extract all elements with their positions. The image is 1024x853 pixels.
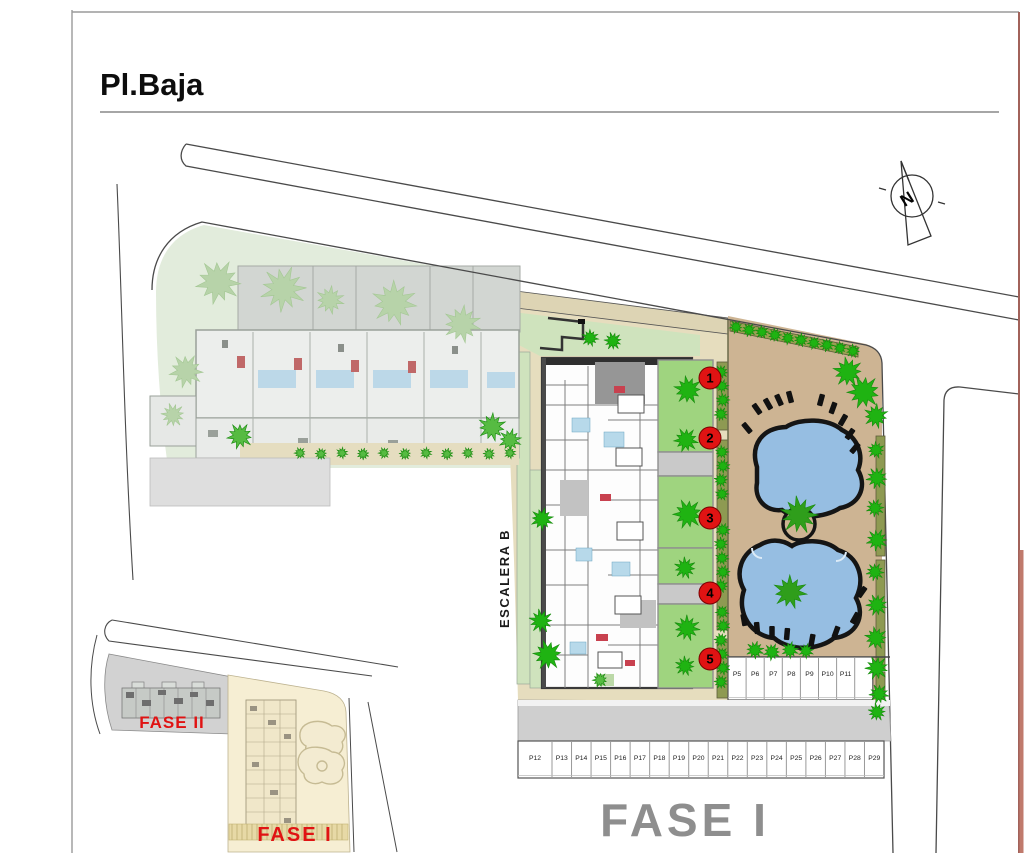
unit-marker-number: 4: [706, 586, 714, 601]
unit-marker-number: 5: [706, 652, 713, 667]
parking-stall-label: P8: [787, 671, 796, 678]
parking-stall-label: P22: [731, 755, 743, 762]
parking-row-top: P5P6P7P8P9P10P11: [728, 657, 873, 700]
fase2-main-slab: [196, 330, 519, 418]
parking-stall-label: P20: [692, 755, 704, 762]
unit-marker: 1: [699, 367, 721, 389]
unit-marker: 2: [699, 427, 721, 449]
unit-marker: 5: [699, 648, 721, 670]
parking-stall-label: P23: [751, 755, 763, 762]
compass-tick-left: [879, 188, 886, 190]
fase1-core-mid: [560, 480, 588, 516]
parking-stall-label: P9: [805, 671, 814, 678]
driveway-stripe: [518, 700, 890, 706]
parking-stall-label: P25: [790, 755, 802, 762]
inset-pools-sketch: [298, 721, 345, 784]
escalera-b-label: ESCALERA B: [497, 529, 512, 628]
pool-upper: [755, 421, 862, 517]
inset-fase1-label: FASE I: [257, 824, 332, 846]
page-title: Pl.Baja: [100, 67, 204, 102]
compass-tick-right: [938, 202, 945, 204]
parking-row-bottom: P12P13P14P15P16P17P18P19P20P21P22P23P24P…: [518, 741, 884, 778]
patio-1: [658, 452, 713, 476]
site-plan: Pl.Baja: [0, 0, 1024, 853]
sun-lounger-icon: [769, 626, 775, 638]
parking-stall-label: P14: [575, 755, 587, 762]
parking-stall-label: P17: [634, 755, 646, 762]
parking-stall-label: P10: [822, 671, 834, 678]
parking-stall-label: P19: [673, 755, 685, 762]
unit-marker: 4: [699, 582, 721, 604]
driveway: [518, 700, 891, 741]
garden-unit-5: [658, 604, 713, 688]
parking-stall-label: P6: [751, 671, 760, 678]
fase1-main-label: FASE I: [600, 794, 770, 846]
parking-stall-label: P11: [840, 671, 852, 678]
parking-stall-label: P21: [712, 755, 724, 762]
north-compass: N: [879, 161, 945, 245]
parking-stall-label: P5: [733, 671, 742, 678]
inset-fase2-label: FASE II: [139, 713, 205, 732]
sun-lounger-icon: [754, 622, 761, 634]
parking-stall-label: P16: [614, 755, 626, 762]
sun-lounger-icon: [784, 628, 791, 640]
fase2-walkway: [150, 458, 330, 506]
inset-keyplan: FASE II FASE I: [105, 620, 398, 852]
site-plan-canvas: Pl.Baja: [0, 0, 1024, 853]
road-left-edge: [117, 184, 133, 580]
unit-marker-number: 2: [706, 431, 713, 446]
inset-fase1-building-sketch: [246, 700, 296, 838]
inset-road-right: [349, 698, 397, 852]
parking-stall-label: P12: [529, 755, 541, 762]
fase1-entry-mark: [578, 319, 585, 324]
parking-stall-label: P15: [595, 755, 607, 762]
parking-stall-label: P7: [769, 671, 778, 678]
parking-stall-label: P27: [829, 755, 841, 762]
unit-marker-number: 3: [706, 511, 713, 526]
parking-stall-label: P29: [868, 755, 880, 762]
parking-stall-label: P24: [771, 755, 783, 762]
unit-marker-number: 1: [706, 371, 713, 386]
parking-stall-label: P18: [653, 755, 665, 762]
road-right-edge: [936, 387, 1019, 853]
unit-marker: 3: [699, 507, 721, 529]
inset-road-left-curve: [91, 635, 100, 734]
parking-stall-label: P26: [810, 755, 822, 762]
parking-stall-label: P13: [556, 755, 568, 762]
driveway-surface: [518, 700, 891, 741]
parking-stall-label: P28: [849, 755, 861, 762]
